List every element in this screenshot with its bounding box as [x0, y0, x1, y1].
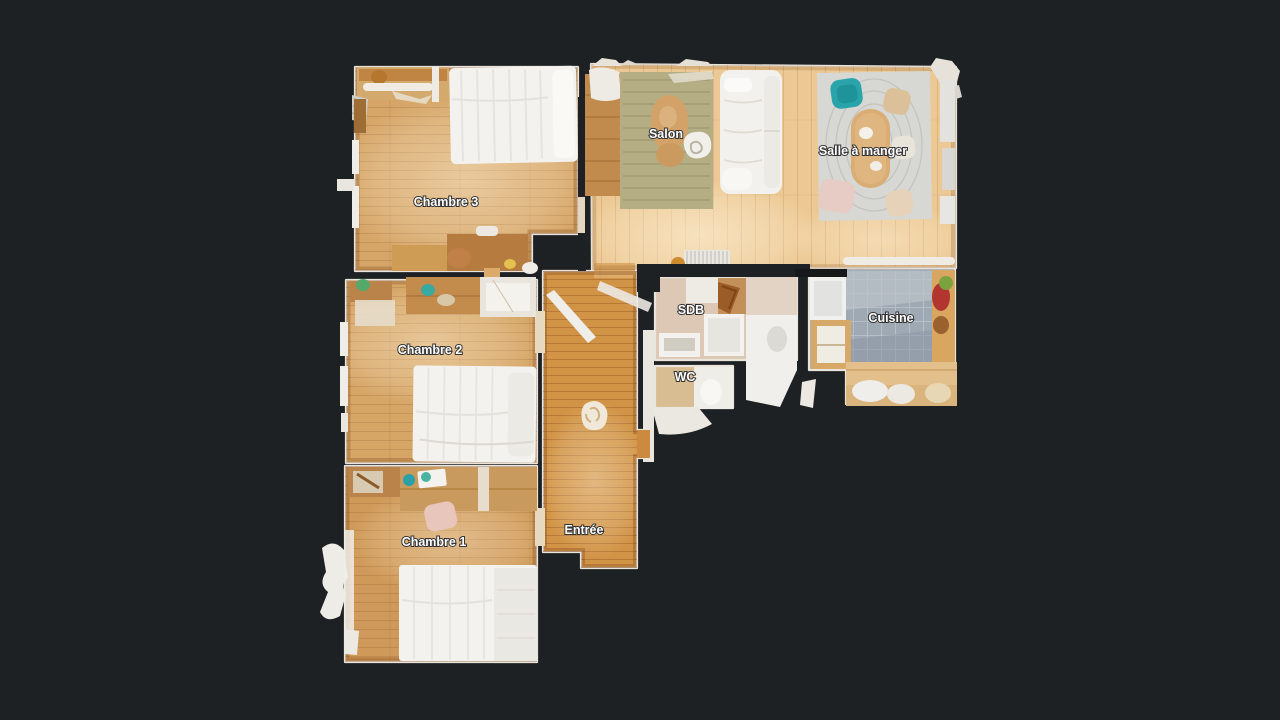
svg-text:Chambre 3: Chambre 3: [414, 195, 479, 209]
svg-text:Chambre 1: Chambre 1: [402, 535, 467, 549]
svg-text:Cuisine: Cuisine: [868, 311, 913, 325]
svg-text:Chambre 2: Chambre 2: [398, 343, 463, 357]
svg-text:Salon: Salon: [649, 127, 683, 141]
svg-text:SDB: SDB: [678, 303, 704, 317]
svg-text:WC: WC: [675, 370, 696, 384]
svg-text:Salle à manger: Salle à manger: [819, 144, 907, 158]
svg-text:Entrée: Entrée: [565, 523, 604, 537]
